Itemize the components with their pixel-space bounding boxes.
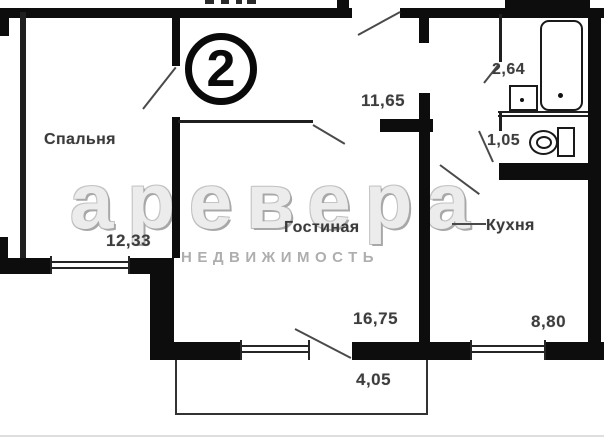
- wall-top-right: [400, 8, 604, 18]
- toilet-bowl-inner: [536, 136, 552, 149]
- wall-kitchen-stub: [419, 15, 429, 43]
- clipped-label-fragment: [236, 0, 242, 4]
- living-door-leaf: [312, 124, 345, 145]
- wall-bath-wc-line: [498, 111, 588, 113]
- wall-hall-bedroom-top: [172, 14, 180, 66]
- clipped-label-fragment: [247, 0, 256, 4]
- wall-left-low: [0, 237, 8, 259]
- wall-living-kitchen: [419, 93, 430, 360]
- window-line: [240, 345, 310, 347]
- clipped-label-fragment: [205, 0, 214, 4]
- window-line: [240, 351, 310, 353]
- watermark-subtitle: НЕДВИЖИМОСТЬ: [181, 249, 379, 266]
- wall-bedroom-bottom-right: [130, 258, 152, 274]
- kitchen-label: Кухня: [486, 217, 535, 235]
- wall-left-top: [0, 8, 9, 36]
- living-area-label: 16,75: [353, 309, 398, 329]
- wall-bath-wc-line: [498, 115, 588, 117]
- bathroom-area-label: 2,64: [492, 61, 525, 79]
- wall-hall-bedroom-bottom: [172, 117, 180, 258]
- wall-living-bottom-right: [352, 342, 427, 360]
- bedroom-window: [50, 256, 130, 274]
- wall-bedroom-left: [20, 12, 26, 258]
- window-line: [470, 345, 546, 347]
- apartment-number: 2: [192, 40, 250, 98]
- entrance-door-leaf: [358, 11, 401, 36]
- wc-area-label: 1,05: [487, 132, 520, 150]
- window-line: [50, 267, 130, 269]
- scan-artifact-line: [0, 435, 604, 437]
- bedroom-door-leaf: [142, 67, 176, 110]
- apartment-number-badge: 2: [185, 33, 257, 105]
- wall-right: [588, 8, 601, 360]
- kitchen-label-leader: [452, 223, 486, 225]
- balcony-area-label: 4,05: [356, 370, 391, 390]
- wall-wc-bottom: [499, 163, 588, 180]
- bedroom-area-label: 12,33: [106, 231, 151, 251]
- window-line: [470, 351, 546, 353]
- sink-drain-dot: [520, 98, 524, 102]
- window-cap: [544, 340, 546, 360]
- living-window: [240, 340, 310, 360]
- window-cap: [308, 340, 310, 360]
- clipped-label-fragment: [221, 0, 229, 4]
- wall-kitchen-bottom-left: [430, 342, 470, 360]
- wall-bathroom-left: [499, 14, 502, 62]
- hall-area-label: 11,65: [361, 91, 405, 111]
- wall-bedroom-bottom-left: [0, 258, 50, 274]
- floor-plan: аревера НЕДВИЖИМОСТЬ: [0, 0, 604, 440]
- toilet-tank-icon: [557, 127, 575, 157]
- window-cap: [50, 256, 52, 274]
- bathtub-drain-dot: [558, 93, 563, 98]
- wall-kitchen-bottom-right: [546, 342, 604, 360]
- window-cap: [470, 340, 472, 360]
- window-cap: [128, 256, 130, 274]
- balcony-wall-left: [175, 360, 177, 415]
- bedroom-label: Спальня: [44, 131, 116, 149]
- window-line: [50, 261, 130, 263]
- kitchen-area-label: 8,80: [531, 312, 566, 332]
- balcony-wall-right: [426, 360, 428, 415]
- window-cap: [240, 340, 242, 360]
- wall-nub-top-right: [505, 0, 590, 9]
- balcony-wall-bottom: [175, 413, 428, 415]
- wall-hall-living: [178, 120, 313, 123]
- living-label: Гостиная: [284, 219, 360, 237]
- kitchen-window: [470, 340, 546, 360]
- wall-stub-above-top: [337, 0, 349, 8]
- wall-living-bottom-left: [150, 342, 240, 360]
